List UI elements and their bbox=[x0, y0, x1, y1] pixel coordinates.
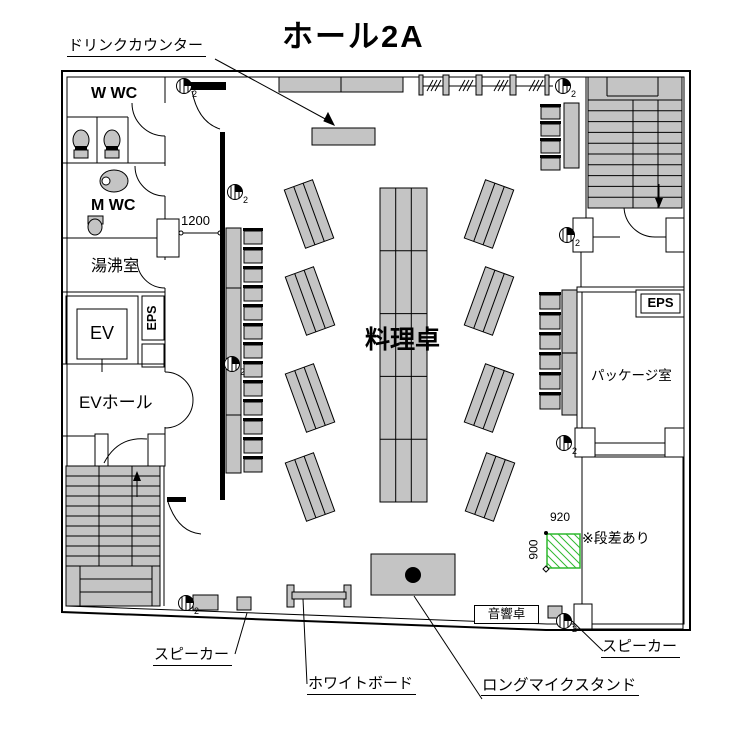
tilted-table-group bbox=[464, 267, 513, 336]
cooking-table-label: 料理卓 bbox=[365, 327, 440, 355]
svg-text:2: 2 bbox=[575, 238, 580, 248]
tilted-table-group bbox=[285, 267, 334, 336]
room-label-package: パッケージ室 bbox=[591, 369, 672, 384]
speaker-left-box bbox=[237, 597, 251, 610]
room-label-w-wc: W WC bbox=[91, 85, 137, 103]
drink-counter-table bbox=[312, 128, 375, 145]
mic-stand-icon bbox=[405, 567, 421, 583]
speaker-left-label: スピーカー bbox=[153, 647, 232, 666]
room-label-eps-left: EPS bbox=[142, 296, 164, 340]
leader-arrowhead-icon bbox=[324, 113, 334, 125]
room-label-water-heater: 湯沸室 bbox=[91, 258, 139, 276]
svg-text:2: 2 bbox=[572, 624, 577, 634]
toilet-fixtures bbox=[73, 130, 128, 235]
tilted-table-group bbox=[465, 453, 514, 522]
step-note-label: ※段差あり bbox=[582, 531, 650, 546]
whiteboard-symbol bbox=[287, 585, 351, 607]
room-label-eps-right: EPS bbox=[641, 294, 680, 313]
svg-text:2: 2 bbox=[240, 367, 245, 377]
long-mic-stand-label: ロングマイクスタンド bbox=[481, 677, 639, 696]
tilted-table-group bbox=[284, 180, 333, 249]
table-stack-topright bbox=[564, 103, 579, 168]
speaker-right-label: スピーカー bbox=[601, 639, 680, 658]
dimension-920: 920 bbox=[550, 511, 570, 524]
sound-desk-label: 音響卓 bbox=[474, 605, 539, 624]
drink-counter-label: ドリンクカウンター bbox=[67, 38, 206, 57]
svg-text:2: 2 bbox=[243, 195, 248, 205]
movable-partition-wall bbox=[220, 132, 225, 500]
table-stack-left bbox=[226, 228, 241, 473]
tilted-table-group bbox=[285, 364, 334, 433]
stair-upper-right bbox=[588, 77, 682, 208]
room-label-ev: EV bbox=[77, 309, 127, 359]
tilted-table-group bbox=[464, 364, 513, 433]
svg-text:2: 2 bbox=[192, 89, 197, 99]
page-title: ホール2A bbox=[282, 20, 425, 54]
svg-text:2: 2 bbox=[571, 89, 576, 99]
svg-text:2: 2 bbox=[194, 606, 199, 616]
whiteboard-label: ホワイトボード bbox=[307, 676, 416, 695]
floorplan-page: 22222222 ホール2A ドリンクカウンター W WC M WC 湯沸室 E… bbox=[0, 0, 750, 750]
svg-text:2: 2 bbox=[572, 446, 577, 456]
room-label-ev-hall: EVホール bbox=[79, 394, 153, 413]
tilted-table-group bbox=[464, 180, 513, 249]
dimension-900: 900 bbox=[527, 535, 540, 565]
dimension-1200: 1200 bbox=[181, 214, 210, 228]
room-label-m-wc: M WC bbox=[91, 197, 135, 215]
tilted-table-group bbox=[285, 453, 334, 522]
